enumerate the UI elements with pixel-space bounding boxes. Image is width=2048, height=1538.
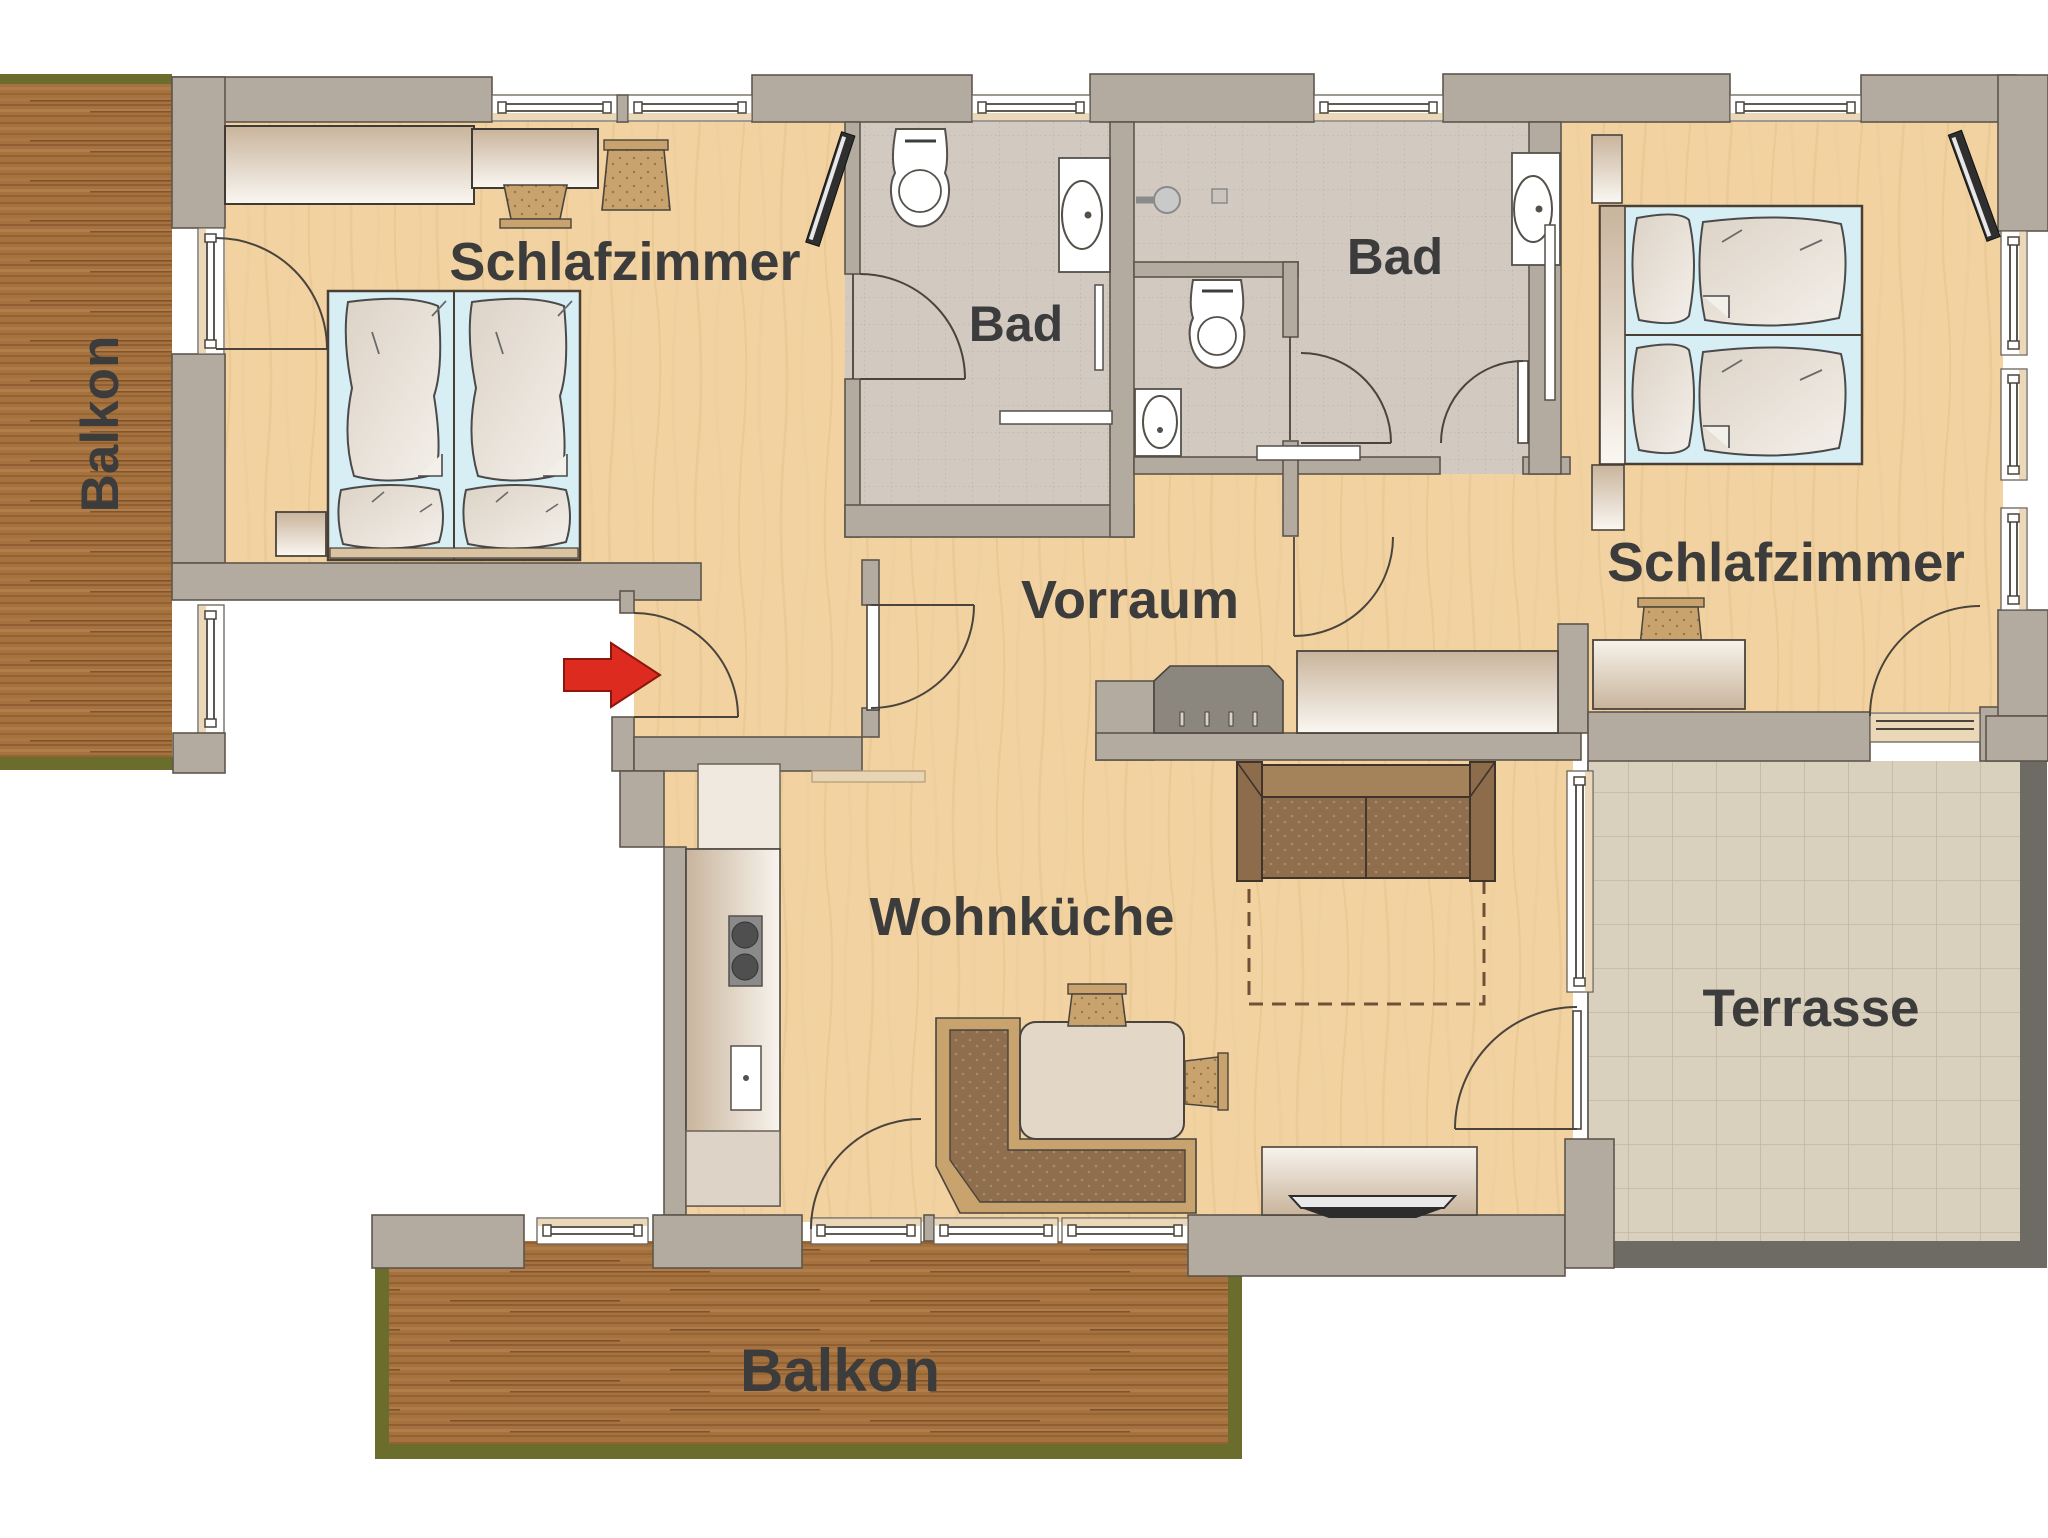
svg-text:Schlafzimmer: Schlafzimmer [449, 232, 800, 292]
svg-text:Vorraum: Vorraum [1021, 570, 1239, 630]
svg-text:Schlafzimmer: Schlafzimmer [1607, 531, 1965, 593]
svg-text:Balkon: Balkon [71, 336, 130, 513]
svg-text:Balkon: Balkon [740, 1337, 940, 1404]
svg-text:Bad: Bad [969, 296, 1063, 352]
svg-text:Bad: Bad [1347, 228, 1443, 285]
svg-text:Wohnküche: Wohnküche [869, 887, 1174, 947]
svg-text:Terrasse: Terrasse [1702, 979, 1919, 1038]
